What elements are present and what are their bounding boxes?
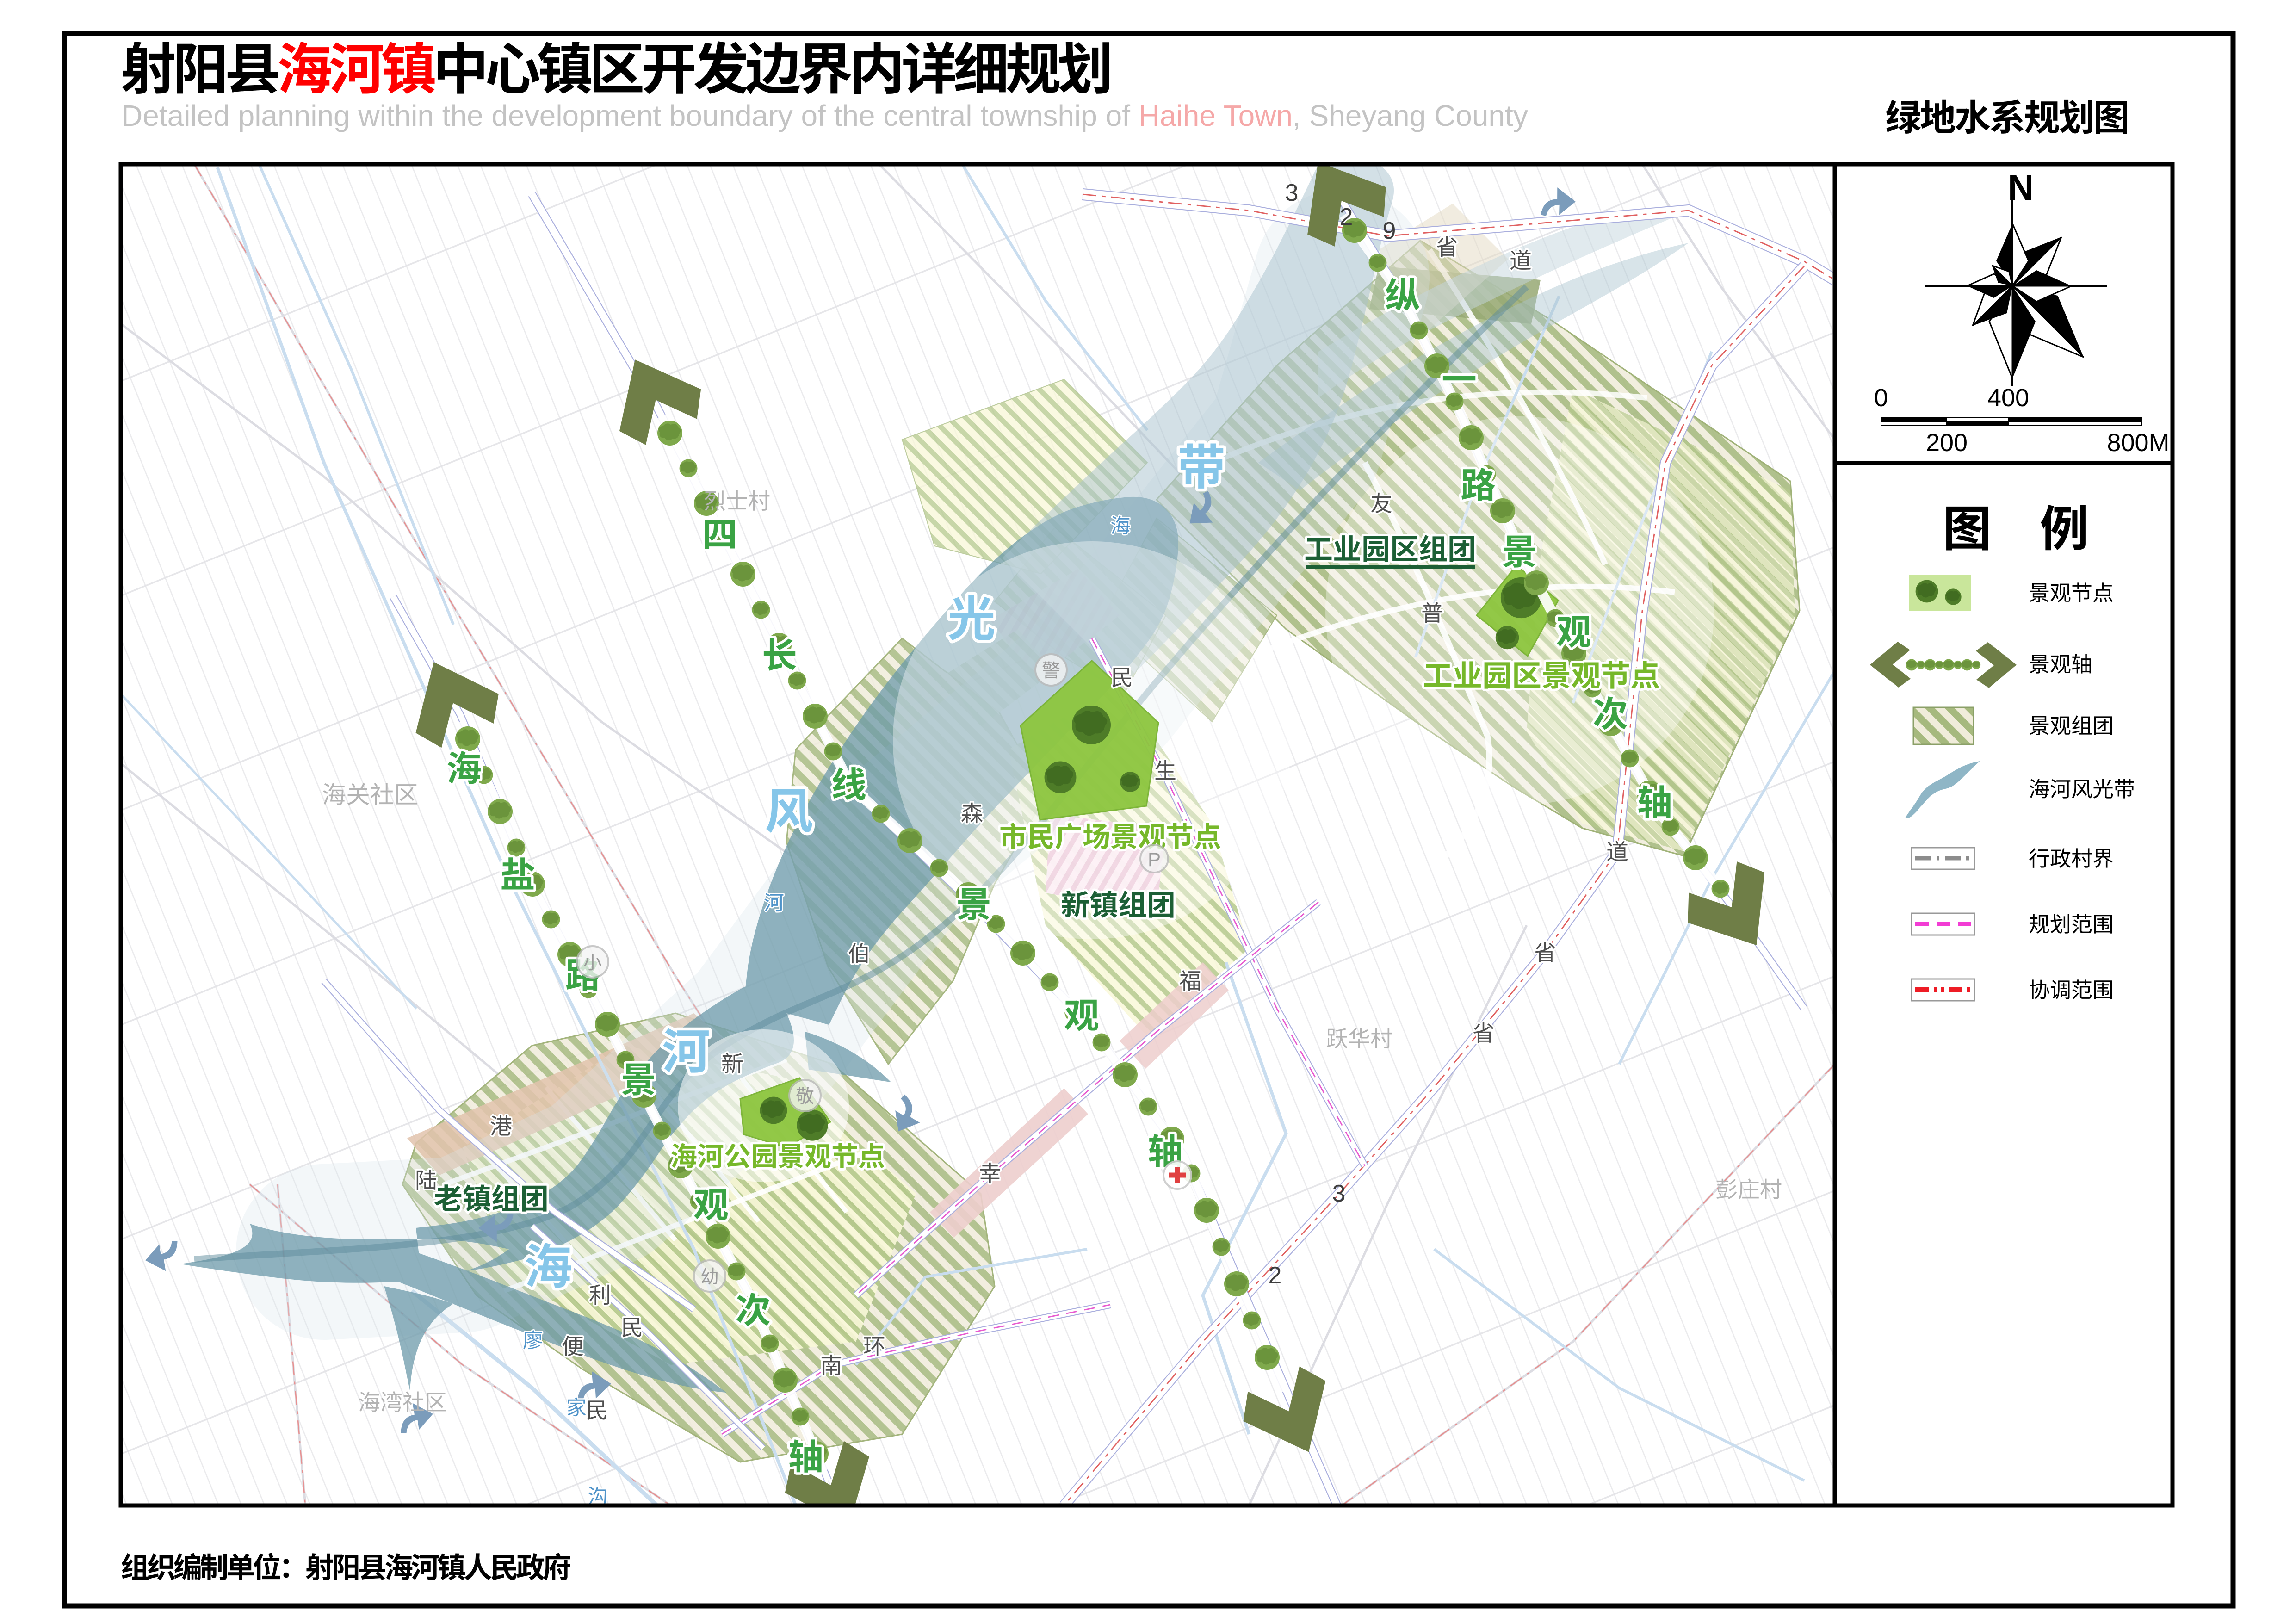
svg-text:9: 9 bbox=[1383, 217, 1396, 244]
svg-text:3: 3 bbox=[1332, 1180, 1346, 1207]
svg-text:0: 0 bbox=[1874, 384, 1888, 412]
svg-text:2: 2 bbox=[1340, 204, 1353, 230]
svg-text:200: 200 bbox=[1926, 429, 1968, 457]
svg-text:2: 2 bbox=[1269, 1262, 1282, 1289]
svg-text:N: N bbox=[2008, 167, 2034, 208]
svg-text:P: P bbox=[1148, 849, 1161, 870]
svg-text:3: 3 bbox=[1285, 180, 1299, 206]
svg-text:800M: 800M bbox=[2107, 429, 2169, 457]
svg-text:Detailed planning within the d: Detailed planning within the development… bbox=[121, 99, 1528, 132]
svg-text:400: 400 bbox=[1987, 384, 2029, 412]
